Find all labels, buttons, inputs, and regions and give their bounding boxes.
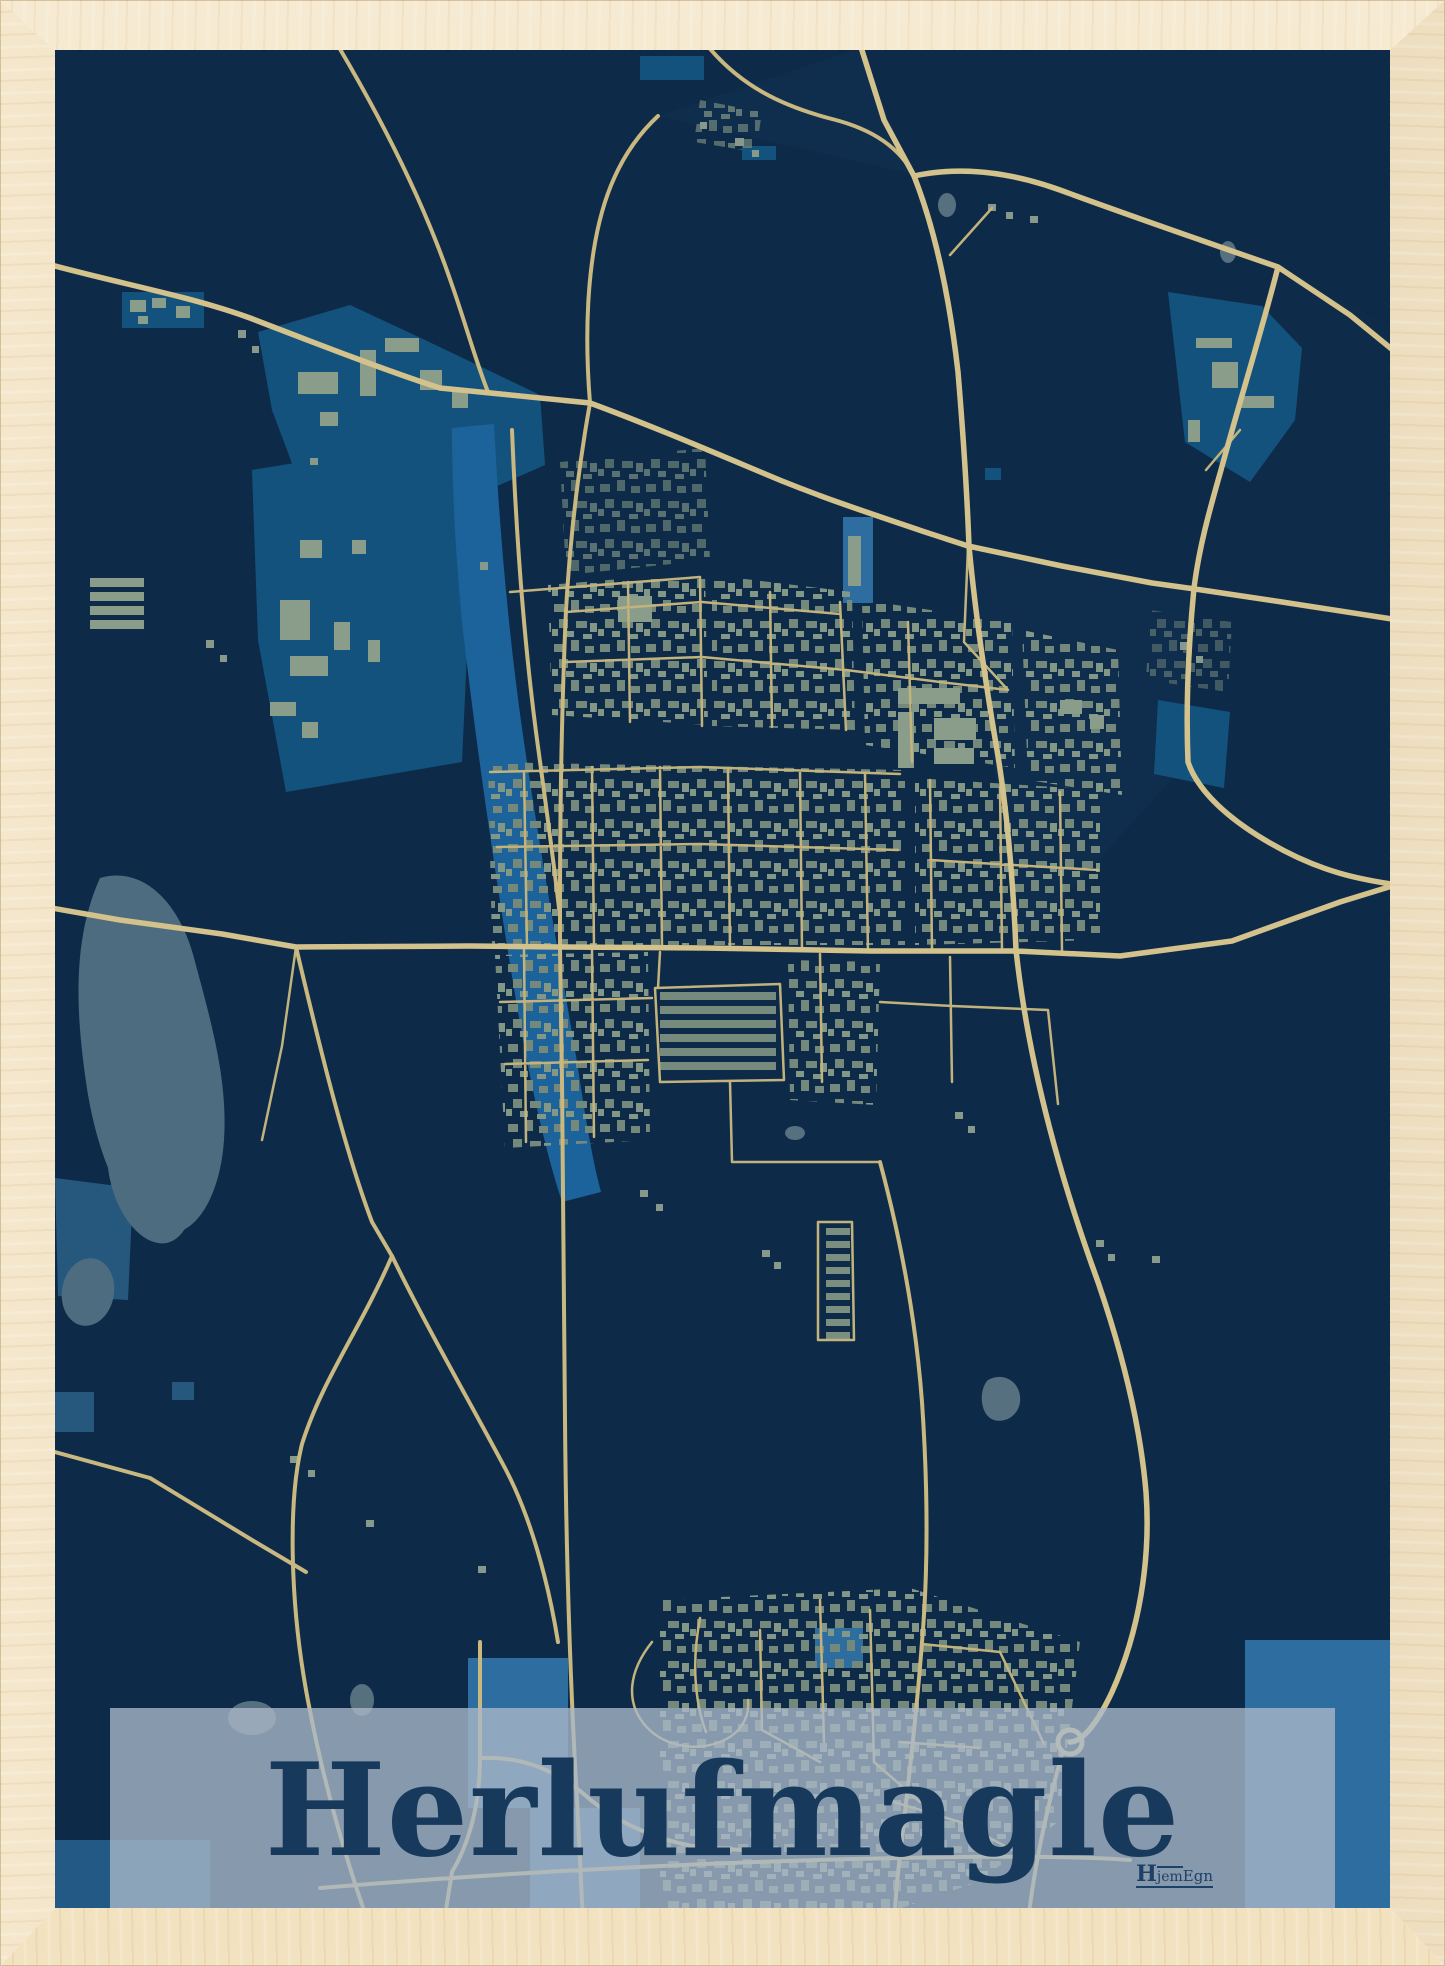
logo-jem: jem: [1157, 1866, 1183, 1885]
poster-title: Herlufmagle: [265, 1747, 1181, 1875]
logo-letter-h: H: [1136, 1861, 1157, 1887]
map-artwork: [55, 50, 1390, 1908]
hjemegn-logo: HjemEgn: [1136, 1863, 1213, 1888]
title-banner: Herlufmagle HjemEgn: [110, 1708, 1335, 1958]
logo-egn: Egn: [1183, 1867, 1213, 1885]
map-print: Herlufmagle HjemEgn: [55, 50, 1390, 1908]
framed-map-poster: Herlufmagle HjemEgn: [0, 0, 1445, 1966]
